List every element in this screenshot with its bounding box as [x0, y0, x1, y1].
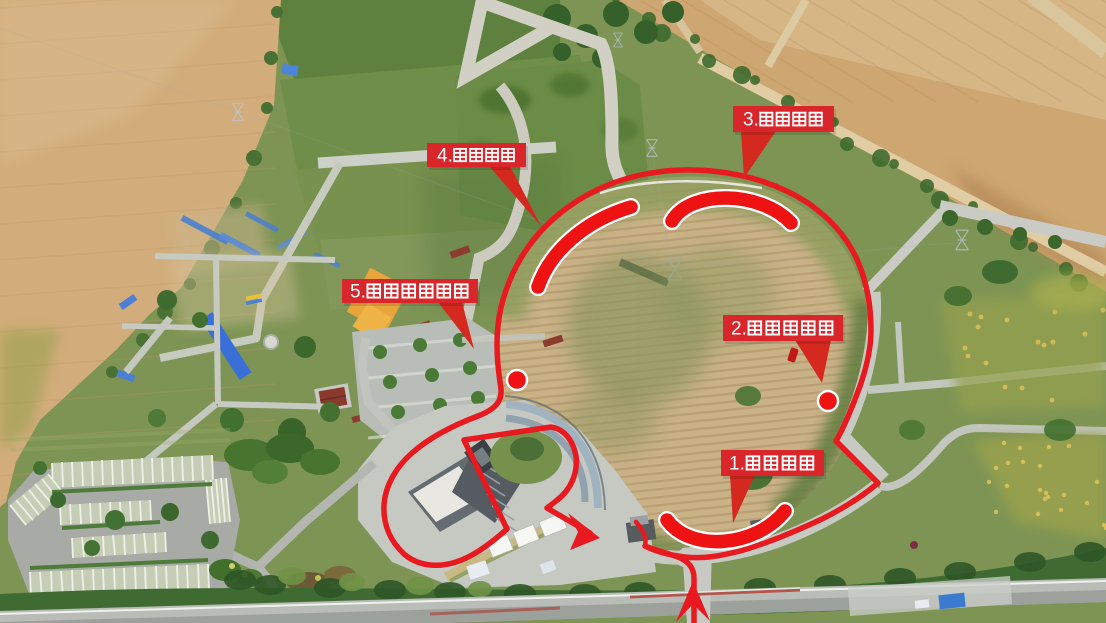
svg-text:3.: 3.	[743, 110, 759, 131]
svg-text:5.: 5.	[350, 282, 366, 303]
svg-text:2.: 2.	[731, 319, 747, 340]
svg-text:1.: 1.	[729, 454, 745, 475]
svg-text:4.: 4.	[437, 146, 453, 167]
